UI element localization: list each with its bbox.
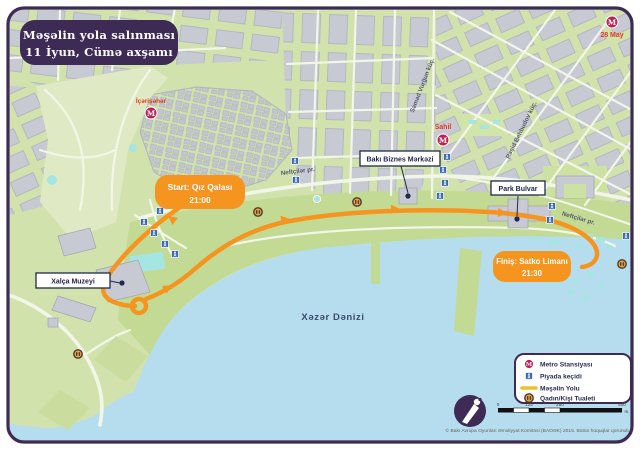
finish-banner: Finiş: Satko Limanı 21:30 (493, 251, 571, 282)
metro-label: İçərişəhər (136, 96, 167, 105)
title-line-1: Məşəlin yola salınması (23, 28, 176, 42)
legend-label-crossing: Piyada keçidi (540, 374, 582, 381)
title-line-2: 11 İyun, Cümə axşamı (25, 45, 173, 59)
poi-dot (405, 193, 410, 198)
title-card: Məşəlin yola salınması 11 İyun, Cümə axş… (20, 20, 178, 65)
svg-text:Bakı Biznes Mərkəzi: Bakı Biznes Mərkəzi (367, 157, 434, 164)
sea-label: Xəzər Dənizi (301, 312, 364, 323)
svg-text:m.: m. (624, 409, 629, 414)
torch-logo (454, 395, 486, 427)
poi-dot (514, 216, 519, 221)
svg-text:21:00: 21:00 (189, 195, 211, 205)
svg-text:Park Bulvar: Park Bulvar (499, 186, 538, 193)
svg-text:Finiş: Satko Limanı: Finiş: Satko Limanı (496, 257, 567, 266)
metro-label: Sahil (435, 124, 452, 131)
legend: Metro Stansiyası Piyada keçidi Məşəlin Y… (515, 354, 631, 403)
torch-relay-map: M (0, 0, 640, 450)
legend-label-metro: Metro Stansiyası (540, 362, 593, 369)
svg-text:500: 500 (618, 402, 626, 407)
poi-dot (119, 280, 124, 285)
legend-label-route: Məşəlin Yolu (540, 386, 580, 393)
legend-label-toilet: Qadın/Kişi Tualeti (540, 396, 595, 403)
map-canvas: İçərişəhər Sahil 28 May Neftçilər pr. Ne… (8, 8, 632, 442)
svg-text:125: 125 (525, 402, 533, 407)
copyright-text: © Bakı Avropa Oyunları Əməliyyat Komitəs… (446, 427, 630, 434)
svg-text:Start: Qız Qalası: Start: Qız Qalası (168, 182, 233, 192)
svg-text:250: 250 (556, 402, 564, 407)
svg-text:0: 0 (497, 402, 500, 407)
svg-text:21:30: 21:30 (522, 269, 543, 278)
start-banner: Start: Qız Qalası 21:00 (155, 175, 245, 209)
metro-label: 28 May (600, 32, 623, 39)
svg-text:Xalça Muzeyi: Xalça Muzeyi (51, 279, 95, 286)
